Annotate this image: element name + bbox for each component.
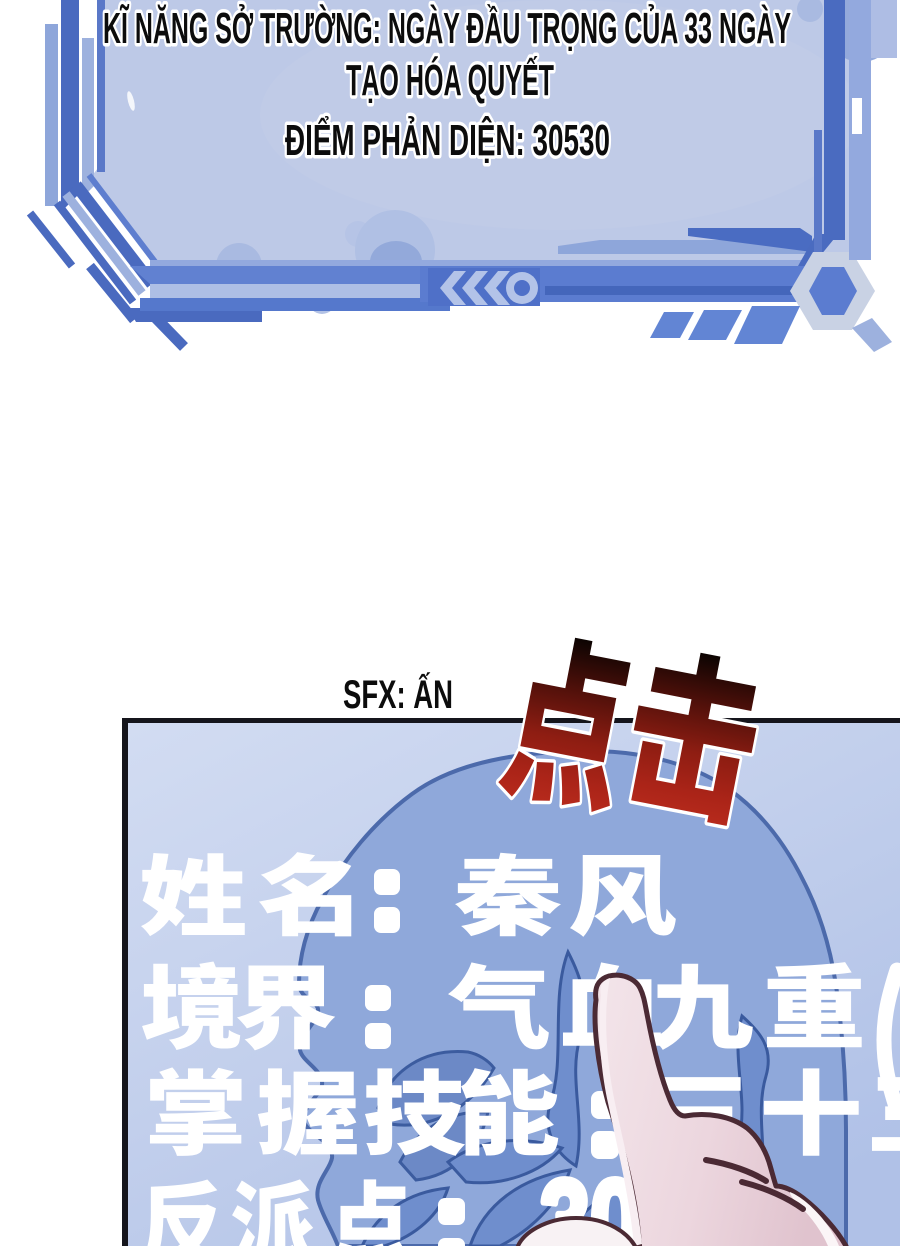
svg-text:SFX: ẤN: SFX: ẤN <box>343 671 453 717</box>
svg-text:ĐIỂM PHẢN DIỆN: 30530: ĐIỂM PHẢN DIỆN: 30530 <box>285 114 610 165</box>
svg-text:KĨ NĂNG SỞ TRƯỜNG: NGÀY ĐẦU TR: KĨ NĂNG SỞ TRƯỜNG: NGÀY ĐẦU TRỌNG CỦA 33… <box>103 2 791 53</box>
svg-text:TẠO HÓA QUYẾT: TẠO HÓA QUYẾT <box>346 55 554 105</box>
